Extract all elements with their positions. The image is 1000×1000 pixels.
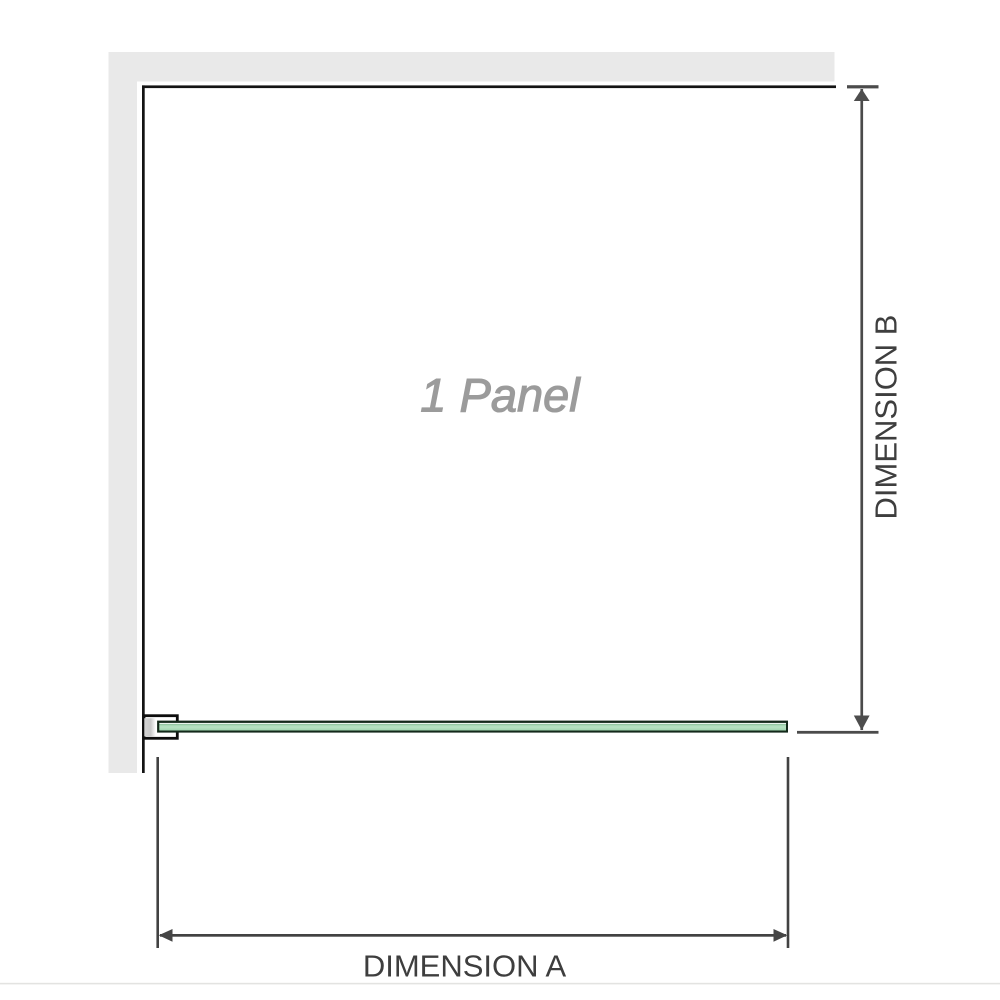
svg-text:1 Panel: 1 Panel xyxy=(420,369,581,422)
svg-text:DIMENSION B: DIMENSION B xyxy=(869,315,904,520)
svg-text:DIMENSION A: DIMENSION A xyxy=(363,949,567,984)
